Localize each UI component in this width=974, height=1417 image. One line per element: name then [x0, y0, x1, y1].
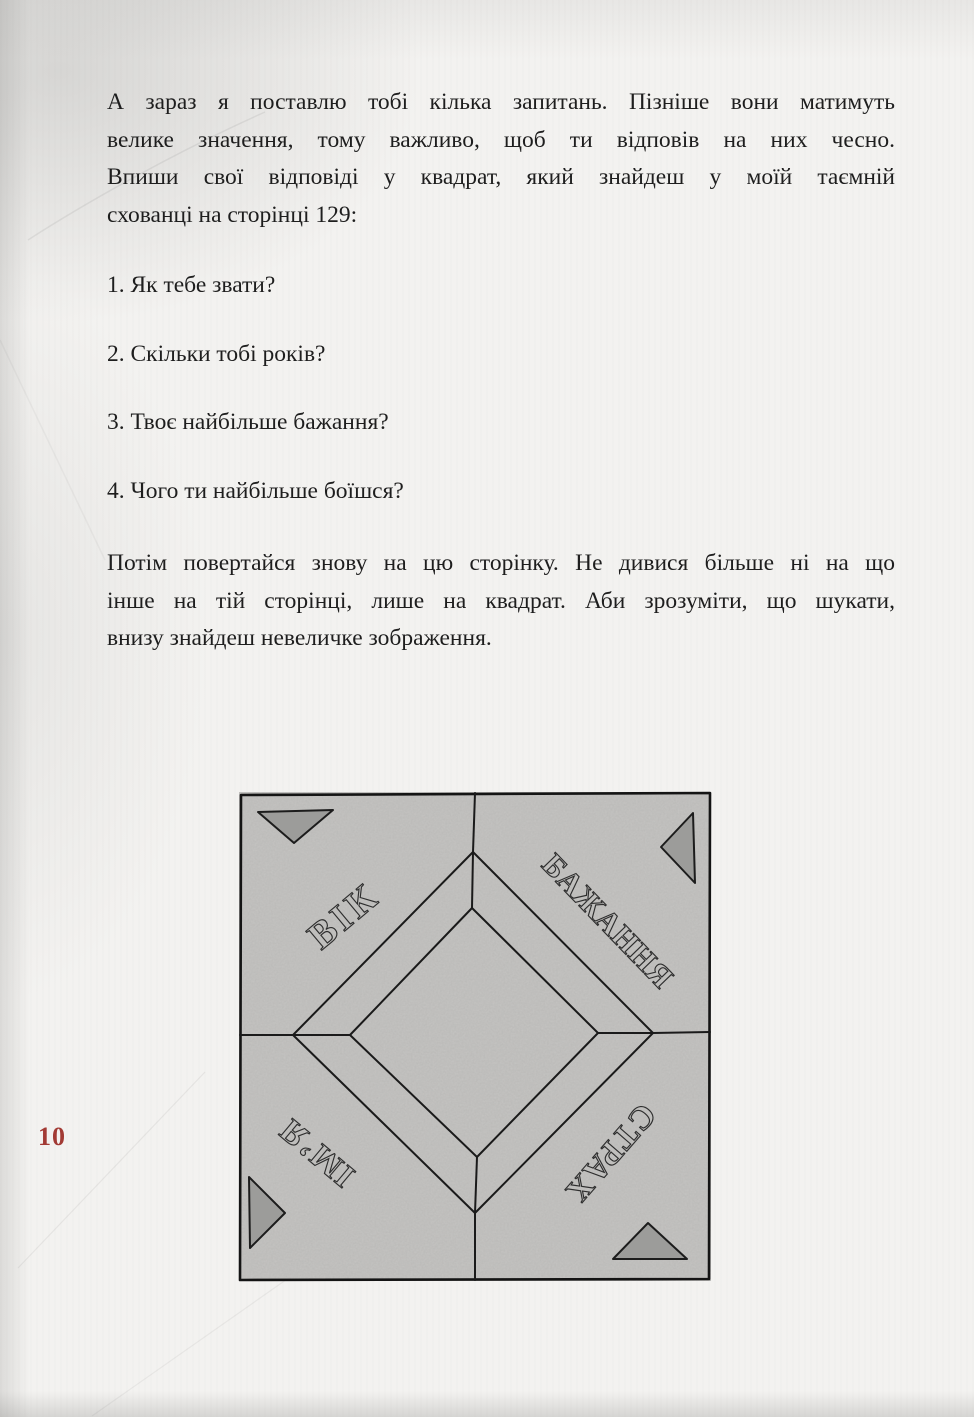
question-item-2: 2. Скільки тобі років? [107, 336, 895, 374]
paragraph-line: внизу знайдеш невеличке зображення. [107, 620, 895, 658]
right-crease-line [653, 1032, 710, 1033]
folded-square-illustration: ВІК БАЖАННЯ ІМ’Я СТРАХ [237, 790, 713, 1283]
paragraph-line: інше на тій сторінці, лише на квадрат. А… [107, 583, 895, 621]
paragraph-line: схованці на сторінці 129: [107, 197, 895, 235]
page-content: А зараз я поставлю тобі кілька запитань.… [107, 84, 895, 658]
question-list: 1. Як тебе звати? 2. Скільки тобі років?… [107, 267, 895, 510]
question-item-4: 4. Чого ти найбільше боїшся? [107, 473, 895, 511]
paragraph-line: Потім повертайся знову на цю сторінку. Н… [107, 545, 895, 583]
closing-paragraph: Потім повертайся знову на цю сторінку. Н… [107, 545, 895, 658]
intro-paragraph: А зараз я поставлю тобі кілька запитань.… [107, 84, 895, 234]
paragraph-line: А зараз я поставлю тобі кілька запитань.… [107, 84, 895, 122]
crease-line [0, 340, 105, 560]
crease-line [18, 1072, 205, 1268]
book-page: А зараз я поставлю тобі кілька запитань.… [0, 0, 974, 1417]
top-connector-line [472, 852, 473, 908]
paragraph-line: Впиши свої відповіді у квадрат, який зна… [107, 159, 895, 197]
crease-line [92, 1270, 300, 1416]
paragraph-line: велике значення, тому важливо, щоб ти ві… [107, 122, 895, 160]
question-item-3: 3. Твоє найбільше бажання? [107, 404, 895, 442]
question-item-1: 1. Як тебе звати? [107, 267, 895, 305]
page-number: 10 [38, 1122, 66, 1152]
